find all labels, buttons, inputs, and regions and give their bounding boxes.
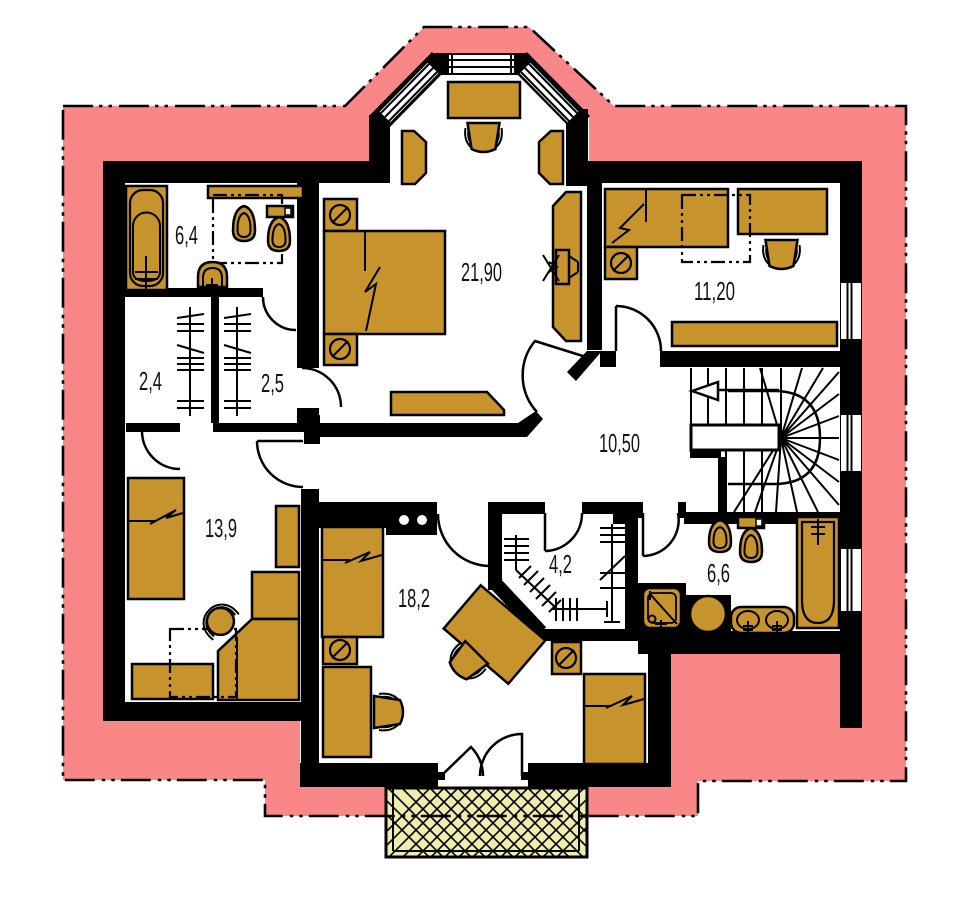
svg-text:2,4: 2,4	[139, 368, 162, 396]
svg-text:18,2: 18,2	[398, 585, 430, 613]
svg-text:11,20: 11,20	[694, 278, 735, 306]
svg-text:6,6: 6,6	[707, 560, 730, 588]
svg-text:10,50: 10,50	[599, 430, 640, 458]
svg-text:21,90: 21,90	[461, 259, 502, 287]
svg-text:4,2: 4,2	[549, 551, 572, 579]
svg-text:13,9: 13,9	[205, 515, 237, 543]
svg-text:6,4: 6,4	[175, 222, 198, 250]
svg-text:2,5: 2,5	[261, 370, 284, 398]
